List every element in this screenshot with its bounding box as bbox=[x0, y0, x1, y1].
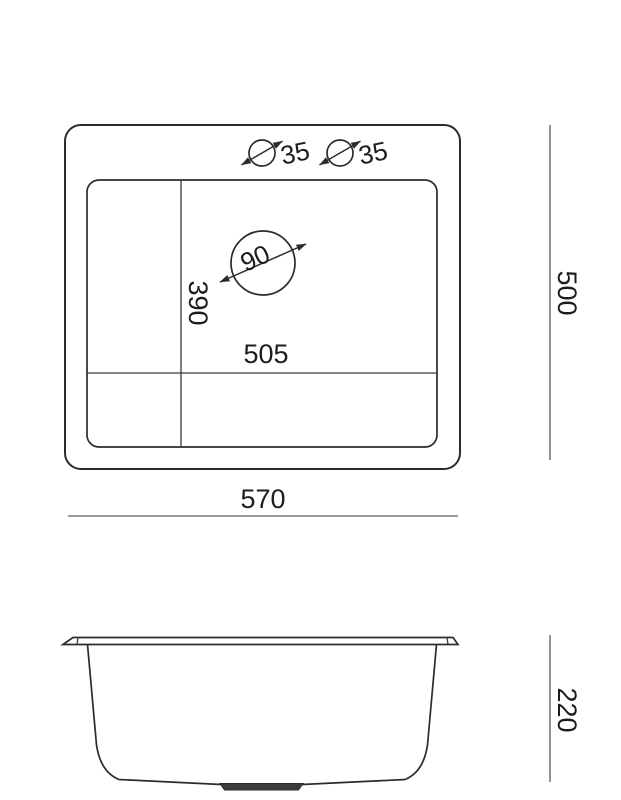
faucet-hole-1-diameter-label: 35 bbox=[278, 135, 313, 170]
side-view bbox=[63, 638, 458, 791]
drain-hole: 90 bbox=[220, 231, 306, 295]
drain-outlet bbox=[220, 784, 303, 791]
faucet-hole-1: 35 bbox=[242, 135, 313, 170]
drawing-canvas: 35 35 90 390 505 570 bbox=[0, 0, 621, 800]
bowl-width-label: 505 bbox=[243, 339, 288, 369]
bowl-height-dimension: 220 bbox=[550, 635, 582, 782]
bowl-depth-label: 390 bbox=[183, 280, 213, 325]
sink-dimension-drawing: 35 35 90 390 505 570 bbox=[0, 0, 621, 800]
sink-outer-outline bbox=[65, 125, 460, 469]
overall-depth-label: 500 bbox=[552, 270, 582, 315]
bowl-outline bbox=[87, 180, 437, 447]
rim-profile bbox=[63, 638, 458, 645]
top-view: 35 35 90 390 505 bbox=[65, 125, 460, 469]
rim-right-edge-tick bbox=[447, 638, 448, 645]
rim-left-edge-tick bbox=[77, 638, 78, 645]
overall-depth-dimension: 500 bbox=[550, 125, 582, 460]
faucet-hole-2-diameter-line bbox=[320, 141, 361, 165]
overall-width-label: 570 bbox=[240, 484, 285, 514]
faucet-hole-2: 35 bbox=[320, 135, 391, 170]
overall-width-dimension: 570 bbox=[68, 484, 458, 516]
faucet-hole-1-diameter-line bbox=[242, 141, 283, 165]
bowl-height-label: 220 bbox=[552, 687, 582, 732]
faucet-hole-2-diameter-label: 35 bbox=[356, 135, 391, 170]
bowl-profile bbox=[88, 645, 437, 785]
